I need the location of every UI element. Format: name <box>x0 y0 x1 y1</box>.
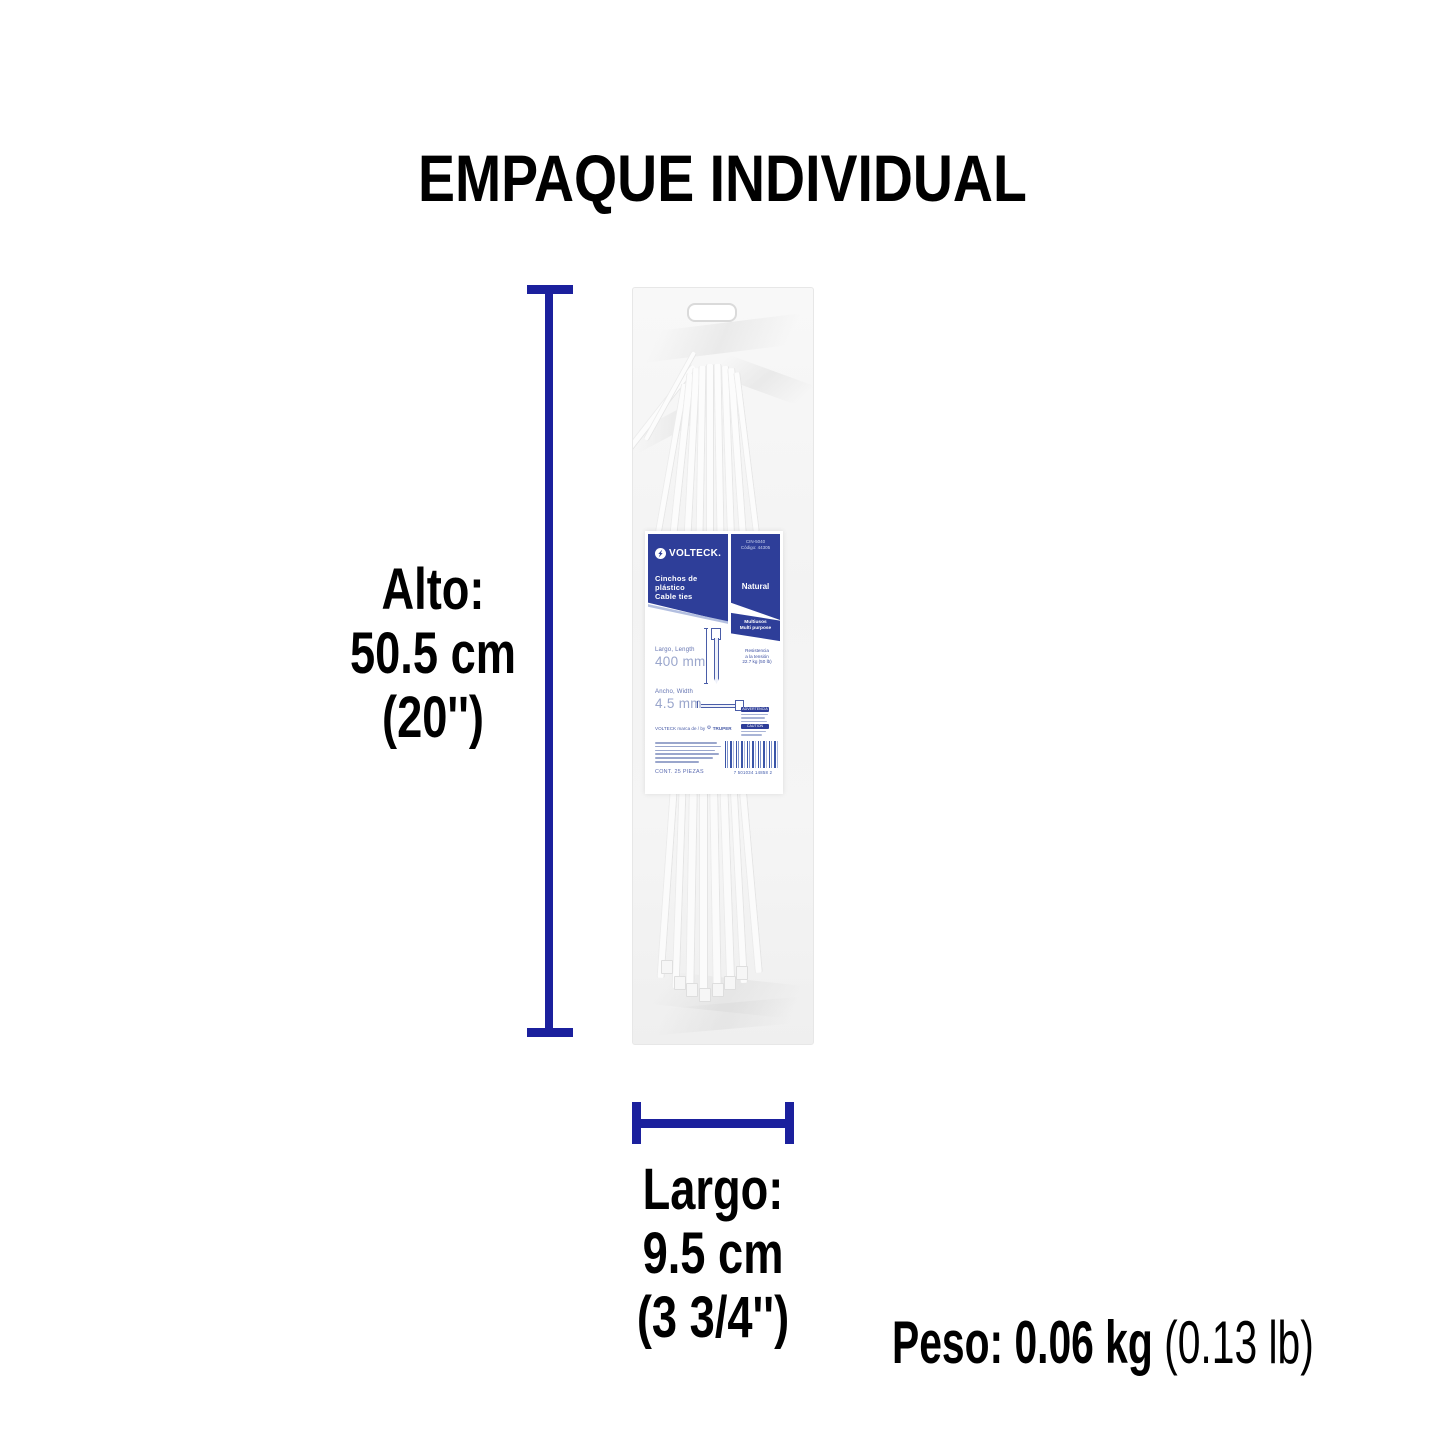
length-imperial: (3 3/4'') <box>623 1286 802 1350</box>
weight-imperial: (0.13 lb) <box>1153 1309 1314 1376</box>
warning-block: ADVERTENCIA CAUTION <box>741 707 769 736</box>
cable-tie-head <box>661 960 673 974</box>
cable-tie <box>696 366 707 534</box>
tie-width-dim-tick <box>697 701 698 708</box>
product-name-en: Cable ties <box>655 592 728 601</box>
width-spec-value: 4.5 mm <box>655 696 702 711</box>
height-metric: 50.5 cm <box>343 622 522 686</box>
length-dimension-label: Largo: 9.5 cm (3 3/4'') <box>598 1158 828 1350</box>
use-en: Multi purpose <box>731 626 780 632</box>
volteck-logo-icon <box>655 548 666 559</box>
fine-print-line <box>741 734 762 736</box>
volteck-logo: VOLTECK. <box>655 548 721 559</box>
barcode <box>725 741 780 768</box>
width-spec-label: Ancho, Width <box>655 689 693 695</box>
licensee-line: VOLTECK marca de / by ⚙ TRUPER <box>655 725 732 731</box>
model-code: CIN-5040 Código: 44305 <box>731 539 780 550</box>
tie-dim-tick <box>704 683 708 684</box>
brand-name: VOLTECK. <box>669 548 721 559</box>
length-spec-label: Largo, Length <box>655 647 695 653</box>
cable-tie <box>706 364 714 534</box>
tie-dim-tick <box>704 628 708 629</box>
tension-rating: Resistencia a la tensión 22.7 kg (50 lb) <box>735 648 779 665</box>
tie-length-dim-line <box>706 629 707 684</box>
weight-metric: Peso: 0.06 kg <box>892 1309 1153 1376</box>
length-dim-right-cap <box>785 1102 794 1144</box>
truper-logo-icon: ⚙ <box>707 725 711 731</box>
fine-print-line <box>741 721 767 723</box>
finish-name: Natural <box>731 582 780 591</box>
page-title: EMPAQUE INDIVIDUAL <box>0 140 1445 216</box>
fine-print-line <box>741 731 766 733</box>
height-dimension-label: Alto: 50.5 cm (20'') <box>318 558 548 750</box>
cable-tie-horizontal-diagram-icon <box>701 704 735 708</box>
cable-tie-head <box>736 966 748 980</box>
caution-chip: CAUTION <box>741 724 769 729</box>
fine-print-line <box>741 714 768 716</box>
cable-tie-head <box>724 976 736 990</box>
height-imperial: (20'') <box>343 686 522 750</box>
cable-tie-head <box>712 983 724 997</box>
cable-tie-head <box>686 983 698 997</box>
sku-code: Código: 44305 <box>731 545 780 551</box>
barcode-number: 7 501034 14858 2 <box>723 770 783 775</box>
weight-label: Peso: 0.06 kg (0.13 lb) <box>892 1308 1314 1377</box>
product-name-es: Cinchos de plástico <box>655 574 728 592</box>
content-count: CONT. 25 PIEZAS <box>655 769 704 775</box>
length-label: Largo: <box>623 1158 802 1222</box>
cable-tie <box>699 793 708 998</box>
length-dim-line <box>632 1119 794 1128</box>
product-name: Cinchos de plástico Cable ties <box>655 574 728 601</box>
length-spec-value: 400 mm <box>655 654 706 669</box>
label-header-right: CIN-5040 Código: 44305 Natural <box>731 534 780 620</box>
height-dim-bottom-cap <box>527 1028 573 1037</box>
truper-brand: TRUPER <box>713 726 732 731</box>
cable-tie-vertical-diagram-body <box>714 638 719 684</box>
use-text: Multiusos Multi purpose <box>731 620 780 632</box>
package-label: VOLTECK. Cinchos de plástico Cable ties … <box>645 531 783 794</box>
address-fine-print <box>655 742 721 763</box>
cable-tie <box>685 793 697 993</box>
euro-slot-hang-hole <box>687 303 737 322</box>
product-dimensions-sheet: EMPAQUE INDIVIDUAL Alto: 50.5 cm (20'') <box>0 0 1445 1445</box>
cable-tie-head <box>699 988 711 1002</box>
cable-tie-head <box>674 976 686 990</box>
height-label: Alto: <box>343 558 522 622</box>
fine-print-line <box>741 717 765 719</box>
length-metric: 9.5 cm <box>623 1222 802 1286</box>
warning-chip: ADVERTENCIA <box>741 707 769 712</box>
